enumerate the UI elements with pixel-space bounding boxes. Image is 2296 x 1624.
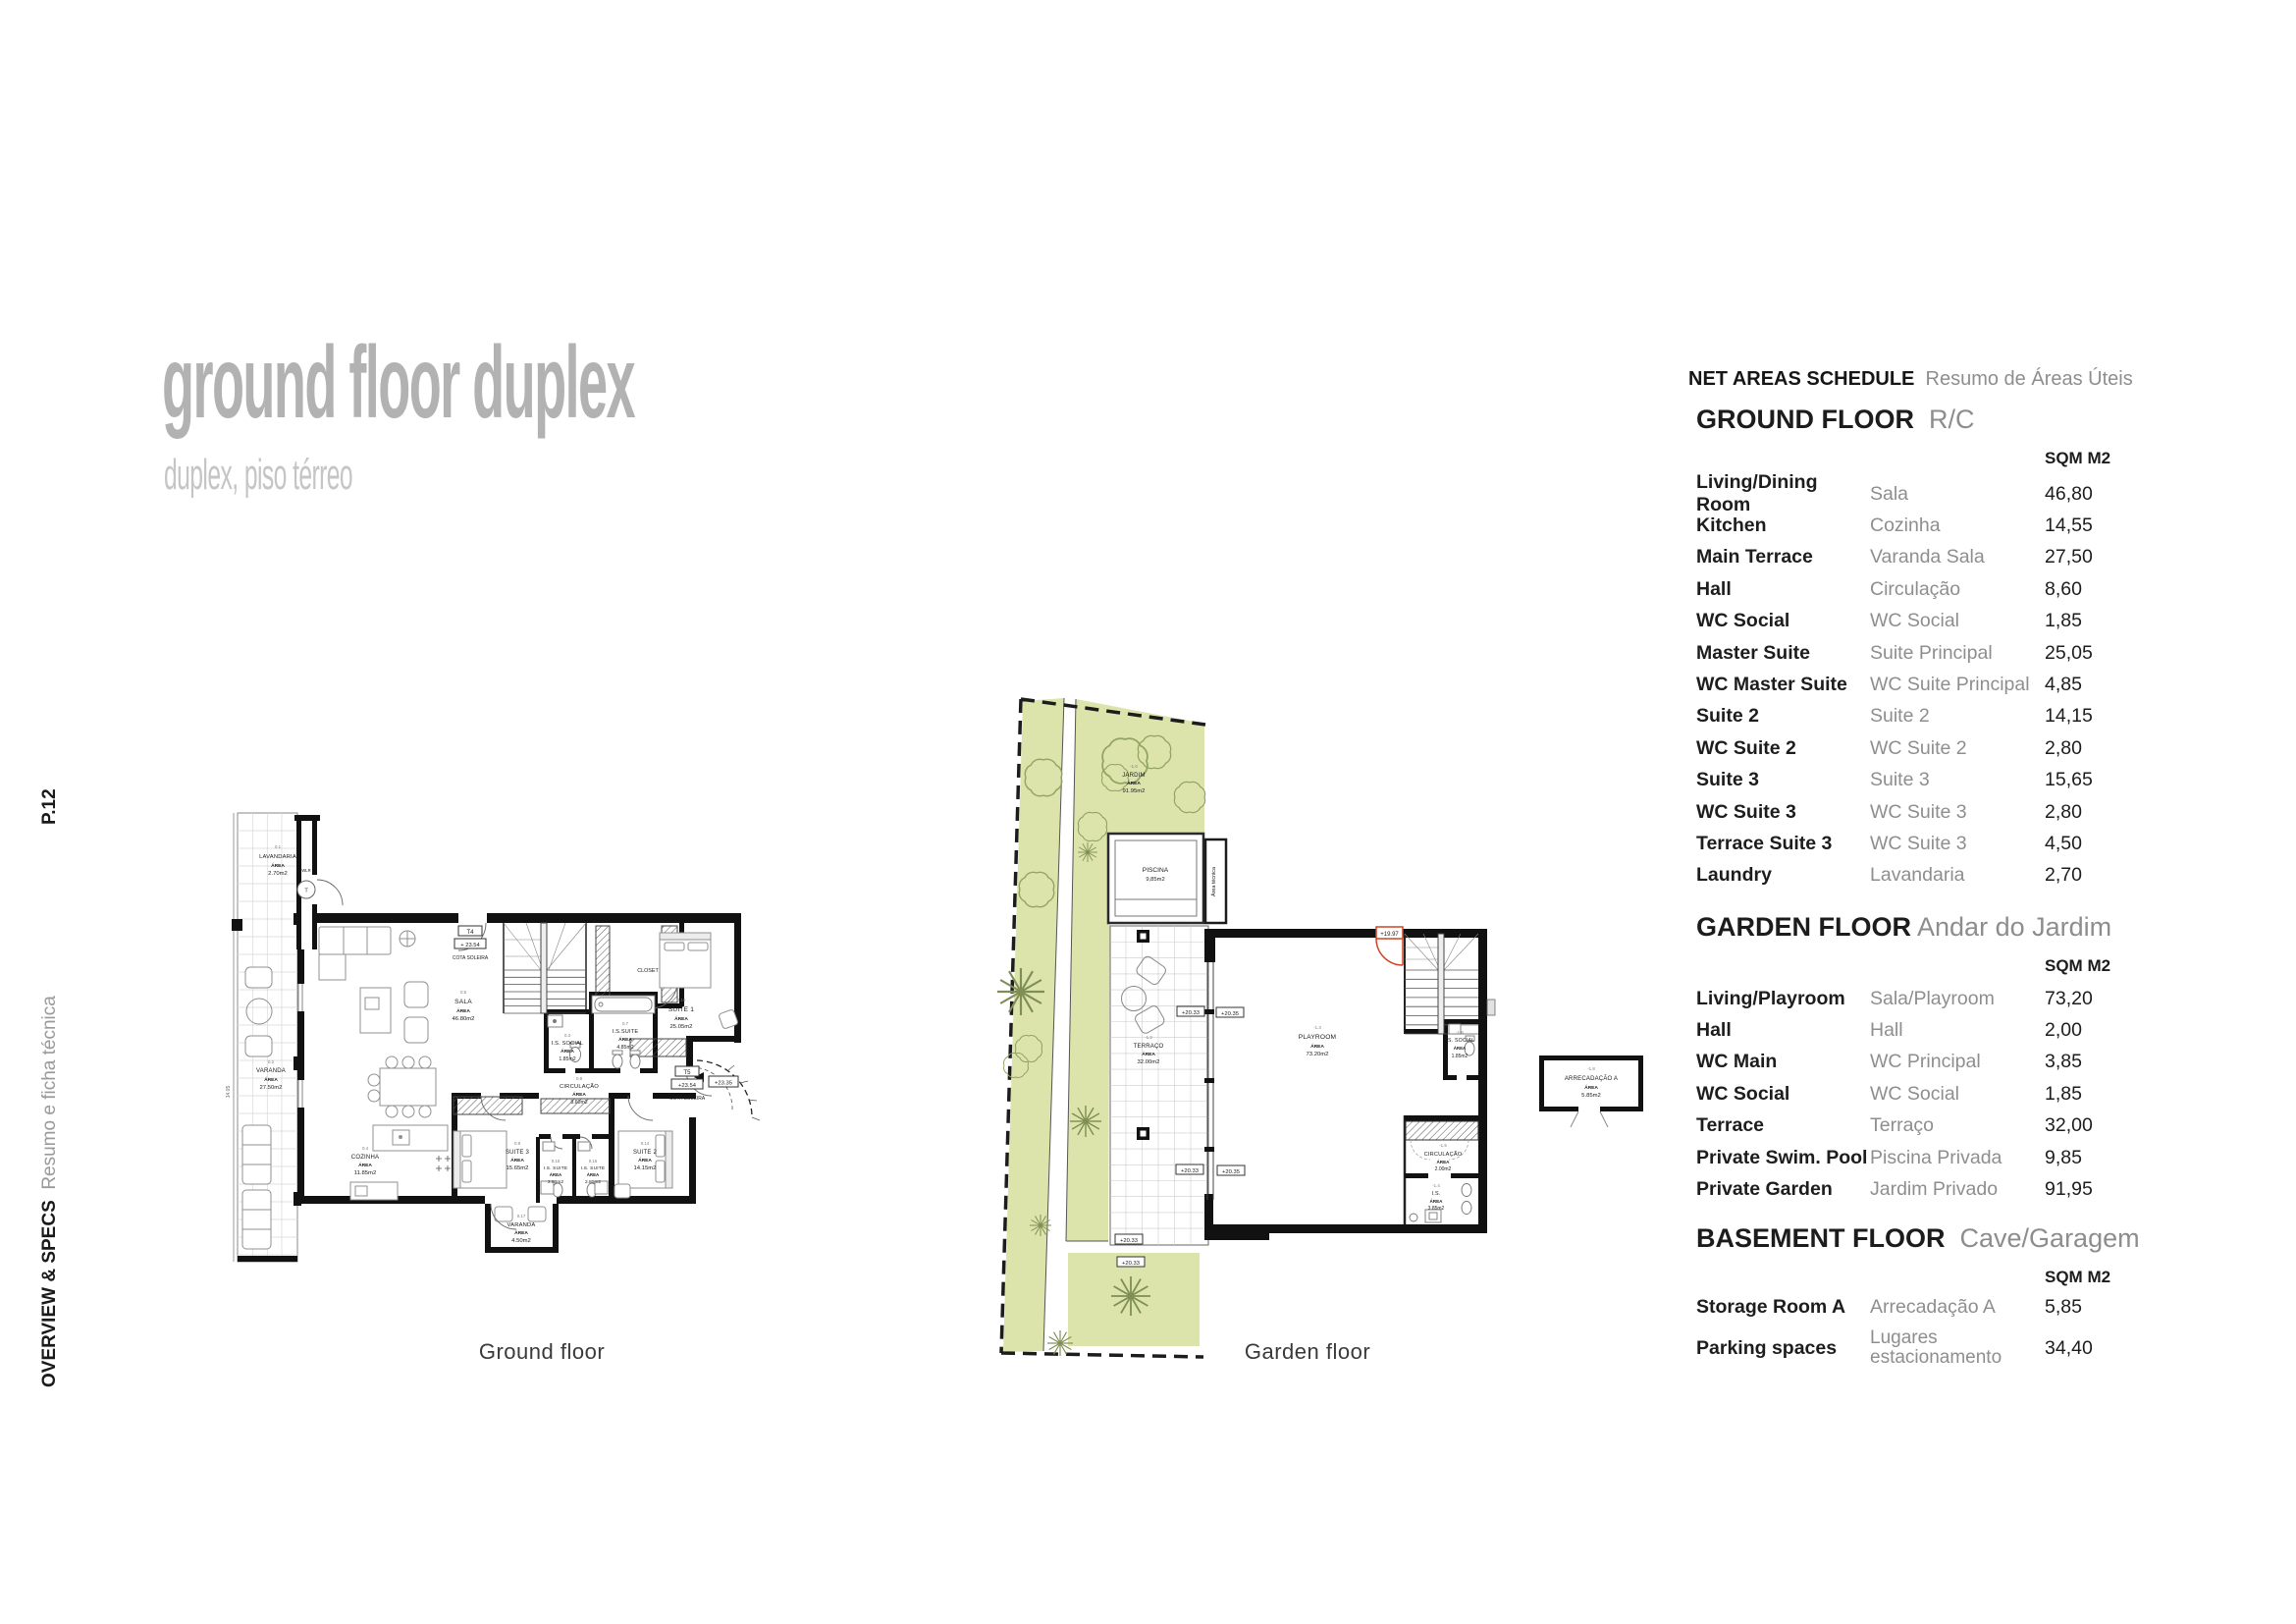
section-title-pt: R/C bbox=[1929, 405, 1975, 434]
svg-text:11.85m2: 11.85m2 bbox=[354, 1170, 377, 1176]
row-pt: WC Suite 3 bbox=[1870, 801, 2045, 824]
row-en: Living/Playroom bbox=[1696, 988, 1870, 1010]
svg-text:PLAYROOM: PLAYROOM bbox=[1299, 1034, 1336, 1041]
table-row: Private GardenJardim Privado91,95 bbox=[1696, 1173, 2140, 1205]
row-sqm: 9,85 bbox=[2045, 1147, 2133, 1169]
svg-text:0.14: 0.14 bbox=[641, 1141, 650, 1146]
swimming-pool: PISCINA 9,85m2 bbox=[1108, 834, 1203, 923]
svg-text:-1.6: -1.6 bbox=[1456, 1030, 1464, 1035]
row-pt: WC Suite Principal bbox=[1870, 674, 2045, 696]
svg-text:ÁREA: ÁREA bbox=[1142, 1051, 1155, 1057]
row-en: Living/Dining Room bbox=[1696, 471, 1870, 516]
row-sqm: 73,20 bbox=[2045, 988, 2133, 1010]
row-en: Suite 2 bbox=[1696, 705, 1870, 728]
svg-text:1.85m2: 1.85m2 bbox=[1452, 1054, 1468, 1059]
svg-text:-1.0: -1.0 bbox=[1130, 764, 1138, 769]
row-sqm: 8,60 bbox=[2045, 578, 2133, 601]
row-en: Laundry bbox=[1696, 864, 1870, 887]
section-ground-floor-title: GROUND FLOOR R/C bbox=[1696, 405, 1975, 435]
svg-text:8.60m2: 8.60m2 bbox=[570, 1100, 587, 1106]
dimension-label: 14.05 bbox=[226, 1086, 232, 1099]
svg-text:2.00m2: 2.00m2 bbox=[1435, 1166, 1452, 1172]
elevation-marker: +20.33 bbox=[1182, 1010, 1200, 1016]
svg-text:ARRECADAÇÃO A: ARRECADAÇÃO A bbox=[1565, 1075, 1618, 1082]
svg-text:COZINHA: COZINHA bbox=[351, 1155, 379, 1161]
ground-floor-caption: Ground floor bbox=[479, 1339, 605, 1365]
table-row: HallCirculação8,60 bbox=[1696, 573, 2140, 605]
row-sqm: 14,55 bbox=[2045, 514, 2133, 537]
svg-text:ÁREA: ÁREA bbox=[456, 1007, 470, 1014]
row-en: WC Social bbox=[1696, 1083, 1870, 1106]
svg-text:TERRAÇO: TERRAÇO bbox=[1134, 1044, 1164, 1050]
svg-text:ÁREA: ÁREA bbox=[358, 1162, 372, 1168]
svg-text:-1.4: -1.4 bbox=[1432, 1183, 1440, 1188]
sidebar-section-label: OVERVIEW & SPECS Resumo e ficha técnica bbox=[39, 996, 61, 1387]
garden-floor-plan: PISCINA 9,85m2 Área técnica -1.2 TERRAÇO… bbox=[987, 687, 1517, 1370]
svg-text:JARDIM: JARDIM bbox=[1122, 773, 1146, 779]
row-sqm: 3,85 bbox=[2045, 1051, 2133, 1073]
row-pt: Suite 2 bbox=[1870, 705, 2045, 728]
door-level-label: +19.97 bbox=[1380, 932, 1399, 938]
row-sqm: 2,80 bbox=[2045, 737, 2133, 760]
row-en: Terrace Suite 3 bbox=[1696, 833, 1870, 855]
svg-text:SUITE 3: SUITE 3 bbox=[506, 1150, 530, 1156]
svg-text:-1.2: -1.2 bbox=[1145, 1035, 1152, 1040]
svg-text:4.50m2: 4.50m2 bbox=[511, 1238, 531, 1244]
row-pt: Varanda Sala bbox=[1870, 546, 2045, 568]
row-en: Main Terrace bbox=[1696, 546, 1870, 568]
row-sqm: 25,05 bbox=[2045, 642, 2133, 665]
row-sqm: 15,65 bbox=[2045, 769, 2133, 791]
page-number: P.12 bbox=[39, 788, 61, 825]
svg-text:ÁREA: ÁREA bbox=[510, 1157, 524, 1164]
label-playroom: -1.3 PLAYROOM ÁREA 73.20m2 bbox=[1299, 1025, 1336, 1057]
row-pt: Sala bbox=[1870, 483, 2045, 506]
row-sqm: 46,80 bbox=[2045, 483, 2133, 506]
svg-text:0.7: 0.7 bbox=[622, 1021, 629, 1026]
row-pt: WC Social bbox=[1870, 1083, 2045, 1106]
label-arrecadacao: -1.8 ARRECADAÇÃO A ÁREA 5.85m2 bbox=[1565, 1066, 1618, 1099]
t4-cota: COTA SOLEIRA bbox=[453, 955, 489, 961]
ground-floor-rows: Living/Dining RoomSala46,80 KitchenCozin… bbox=[1696, 478, 2140, 892]
staircase bbox=[504, 923, 586, 1013]
svg-text:91.95m2: 91.95m2 bbox=[1123, 788, 1146, 794]
ground-floor-plan: WLR T bbox=[221, 803, 771, 1270]
table-row: Parking spacesLugares estacionamento34,4… bbox=[1696, 1323, 2140, 1374]
table-row: TerraceTerraço32,00 bbox=[1696, 1110, 2140, 1142]
svg-text:73.20m2: 73.20m2 bbox=[1307, 1052, 1329, 1057]
row-sqm: 27,50 bbox=[2045, 546, 2133, 568]
row-en: Master Suite bbox=[1696, 642, 1870, 665]
terrace: -1.2 TERRAÇO ÁREA 32.00m2 bbox=[1110, 926, 1208, 1245]
label-area-tecnica: Área técnica bbox=[1210, 867, 1217, 896]
row-en: WC Suite 2 bbox=[1696, 737, 1870, 760]
svg-text:ÁREA: ÁREA bbox=[1127, 780, 1141, 786]
svg-text:ÁREA: ÁREA bbox=[1436, 1159, 1450, 1164]
section-title-en: GROUND FLOOR bbox=[1696, 405, 1914, 434]
schedule-title: NET AREAS SCHEDULE bbox=[1688, 368, 1914, 390]
label-suite3: 0.9 SUITE 3 ÁREA 15.65m2 bbox=[506, 1141, 530, 1171]
sidebar-section-en: OVERVIEW & SPECS bbox=[39, 1200, 60, 1387]
svg-text:-1.8: -1.8 bbox=[1587, 1066, 1595, 1071]
svg-text:I.S. SOCIAL: I.S. SOCIAL bbox=[552, 1041, 584, 1047]
svg-text:0.16: 0.16 bbox=[589, 1159, 598, 1164]
row-sqm: 32,00 bbox=[2045, 1114, 2133, 1137]
svg-text:ÁREA: ÁREA bbox=[674, 1015, 688, 1022]
svg-text:ÁREA: ÁREA bbox=[271, 862, 285, 869]
sidebar-section-pt: Resumo e ficha técnica bbox=[39, 996, 60, 1190]
table-row: Master SuiteSuite Principal25,05 bbox=[1696, 637, 2140, 669]
svg-text:ÁREA: ÁREA bbox=[638, 1157, 652, 1164]
svg-text:3.85m2: 3.85m2 bbox=[1428, 1206, 1445, 1212]
label-is: -1.4 I.S. ÁREA 3.85m2 bbox=[1428, 1183, 1445, 1212]
svg-text:0.5: 0.5 bbox=[460, 990, 467, 995]
table-row: Suite 3Suite 315,65 bbox=[1696, 765, 2140, 796]
unit-header: SQM M2 bbox=[2045, 956, 2110, 976]
svg-text:I.S.: I.S. bbox=[1432, 1191, 1441, 1197]
elevation-marker: +20.35 bbox=[1221, 1011, 1239, 1017]
row-pt: Piscina Privada bbox=[1870, 1147, 2045, 1169]
row-pt: Terraço bbox=[1870, 1114, 2045, 1137]
t5-cota: COTA SOLEIRA bbox=[669, 1096, 706, 1102]
basement-floor-rows: Storage Room AArrecadação A5,85 Parking … bbox=[1696, 1291, 2140, 1374]
label-closet: CLOSET bbox=[637, 968, 659, 974]
row-en: Hall bbox=[1696, 1019, 1870, 1042]
table-row: Storage Room AArrecadação A5,85 bbox=[1696, 1291, 2140, 1323]
table-row: WC SocialWC Social1,85 bbox=[1696, 1078, 2140, 1110]
elevation-marker: +20.33 bbox=[1122, 1261, 1140, 1267]
svg-text:4.85m2: 4.85m2 bbox=[616, 1045, 633, 1051]
entry-door-red: +19.97 bbox=[1376, 927, 1403, 965]
svg-text:I.S. SUITE: I.S. SUITE bbox=[544, 1165, 568, 1171]
table-row: WC Master SuiteWC Suite Principal4,85 bbox=[1696, 669, 2140, 700]
svg-text:0.3: 0.3 bbox=[564, 1033, 571, 1038]
row-pt: WC Principal bbox=[1870, 1051, 2045, 1073]
wlr-label: WLR bbox=[301, 868, 310, 873]
t4-level: + 23.54 bbox=[460, 943, 480, 948]
row-en: WC Master Suite bbox=[1696, 674, 1870, 696]
table-row: Living/Dining RoomSala46,80 bbox=[1696, 478, 2140, 510]
building-walls bbox=[1204, 929, 1495, 1240]
row-pt: Cozinha bbox=[1870, 514, 2045, 537]
row-sqm: 34,40 bbox=[2045, 1337, 2133, 1360]
svg-text:ÁREA: ÁREA bbox=[1584, 1084, 1598, 1091]
svg-text:VARANDA: VARANDA bbox=[256, 1068, 286, 1074]
laundry-room: WLR T bbox=[294, 815, 320, 949]
section-basement-floor-title: BASEMENT FLOOR Cave/Garagem bbox=[1696, 1223, 2140, 1254]
svg-text:0.15: 0.15 bbox=[552, 1159, 561, 1164]
svg-text:0.9: 0.9 bbox=[514, 1141, 521, 1146]
row-sqm: 4,85 bbox=[2045, 674, 2133, 696]
unit-header: SQM M2 bbox=[2045, 449, 2110, 468]
staircase bbox=[1405, 934, 1478, 1034]
t4-code: T4 bbox=[466, 930, 474, 936]
row-pt: WC Social bbox=[1870, 610, 2045, 632]
svg-text:ÁREA: ÁREA bbox=[572, 1091, 586, 1098]
svg-text:CIRCULAÇÃO: CIRCULAÇÃO bbox=[1424, 1151, 1463, 1158]
svg-text:0.4: 0.4 bbox=[362, 1146, 369, 1151]
row-en: Hall bbox=[1696, 578, 1870, 601]
svg-text:VARANDA: VARANDA bbox=[507, 1222, 536, 1228]
svg-text:0.17: 0.17 bbox=[517, 1214, 526, 1218]
table-row: WC SocialWC Social1,85 bbox=[1696, 606, 2140, 637]
svg-text:25.05m2: 25.05m2 bbox=[670, 1024, 693, 1030]
table-row: Private Swim. PoolPiscina Privada9,85 bbox=[1696, 1142, 2140, 1173]
row-en: WC Main bbox=[1696, 1051, 1870, 1073]
t5-level: +23.54 bbox=[678, 1083, 697, 1089]
table-row: Main TerraceVaranda Sala27,50 bbox=[1696, 542, 2140, 573]
garden-floor-rows: Living/PlayroomSala/Playroom73,20 HallHa… bbox=[1696, 983, 2140, 1206]
svg-text:ÁREA: ÁREA bbox=[514, 1229, 528, 1236]
garden-floor-caption: Garden floor bbox=[1245, 1339, 1370, 1365]
row-sqm: 2,80 bbox=[2045, 801, 2133, 824]
svg-text:2.80m2: 2.80m2 bbox=[548, 1179, 563, 1185]
svg-text:SALA: SALA bbox=[454, 999, 472, 1005]
svg-text:ÁREA: ÁREA bbox=[618, 1036, 632, 1043]
schedule-header: NET AREAS SCHEDULE Resumo de Áreas Úteis bbox=[1688, 368, 2133, 391]
page-subtitle: duplex, piso térreo bbox=[164, 454, 352, 497]
svg-text:0.1: 0.1 bbox=[275, 844, 282, 849]
unit-header: SQM M2 bbox=[2045, 1268, 2110, 1287]
row-en: Kitchen bbox=[1696, 514, 1870, 537]
svg-text:CIRCULAÇÃO: CIRCULAÇÃO bbox=[560, 1083, 599, 1090]
row-pt: Sala/Playroom bbox=[1870, 988, 2045, 1010]
elevation-marker: +20.33 bbox=[1181, 1168, 1199, 1174]
table-row: KitchenCozinha14,55 bbox=[1696, 510, 2140, 541]
table-row: HallHall2,00 bbox=[1696, 1014, 2140, 1046]
svg-text:ÁREA: ÁREA bbox=[1310, 1043, 1324, 1050]
svg-text:14.15m2: 14.15m2 bbox=[634, 1165, 657, 1171]
table-row: LaundryLavandaria2,70 bbox=[1696, 860, 2140, 892]
svg-text:0.2: 0.2 bbox=[268, 1059, 275, 1064]
row-en: Terrace bbox=[1696, 1114, 1870, 1137]
svg-text:ÁREA: ÁREA bbox=[550, 1172, 562, 1177]
svg-text:32.00m2: 32.00m2 bbox=[1138, 1059, 1160, 1065]
row-sqm: 14,15 bbox=[2045, 705, 2133, 728]
svg-text:2.80m2: 2.80m2 bbox=[585, 1179, 601, 1185]
svg-text:2.70m2: 2.70m2 bbox=[268, 871, 288, 877]
row-pt: Suite Principal bbox=[1870, 642, 2045, 665]
balcony-walls bbox=[485, 1204, 559, 1253]
elevation-marker: +20.35 bbox=[1222, 1169, 1240, 1175]
row-sqm: 5,85 bbox=[2045, 1296, 2133, 1319]
page: ground floor duplex duplex, piso térreo … bbox=[0, 0, 2296, 1624]
svg-text:ÁREA: ÁREA bbox=[587, 1172, 600, 1177]
svg-text:15.65m2: 15.65m2 bbox=[507, 1165, 529, 1171]
svg-text:I.S.SUITE: I.S.SUITE bbox=[613, 1029, 639, 1035]
row-sqm: 1,85 bbox=[2045, 1083, 2133, 1106]
table-row: Terrace Suite 3WC Suite 34,50 bbox=[1696, 828, 2140, 859]
section-title-pt: Andar do Jardim bbox=[1917, 912, 2111, 942]
svg-text:0.10: 0.10 bbox=[677, 998, 686, 1002]
row-en: WC Social bbox=[1696, 610, 1870, 632]
row-en: Parking spaces bbox=[1696, 1337, 1870, 1360]
elevation-marker: +20.33 bbox=[1120, 1238, 1138, 1244]
svg-text:ÁREA: ÁREA bbox=[1454, 1046, 1467, 1051]
t5-level2: +23.35 bbox=[715, 1081, 732, 1087]
row-pt: Hall bbox=[1870, 1019, 2045, 1042]
page-title: ground floor duplex bbox=[162, 332, 634, 434]
label-is-suite3a: 0.15 I.S. SUITE ÁREA 2.80m2 bbox=[544, 1159, 568, 1185]
row-sqm: 91,95 bbox=[2045, 1178, 2133, 1201]
svg-text:27.50m2: 27.50m2 bbox=[260, 1085, 283, 1091]
row-pt: Lugares estacionamento bbox=[1870, 1328, 2045, 1369]
row-en: WC Suite 3 bbox=[1696, 801, 1870, 824]
row-sqm: 1,85 bbox=[2045, 610, 2133, 632]
table-row: WC Suite 2WC Suite 22,80 bbox=[1696, 732, 2140, 764]
row-pt: Jardim Privado bbox=[1870, 1178, 2045, 1201]
row-sqm: 2,70 bbox=[2045, 864, 2133, 887]
schedule-title-pt: Resumo de Áreas Úteis bbox=[1926, 368, 2133, 390]
svg-text:I.S. SOCIAL: I.S. SOCIAL bbox=[1445, 1038, 1474, 1044]
svg-text:SUITE 1: SUITE 1 bbox=[668, 1006, 694, 1013]
row-pt: WC Suite 3 bbox=[1870, 833, 2045, 855]
svg-text:I.S. SUITE: I.S. SUITE bbox=[581, 1165, 606, 1171]
row-pt: WC Suite 2 bbox=[1870, 737, 2045, 760]
row-en: Private Garden bbox=[1696, 1178, 1870, 1201]
svg-text:ÁREA: ÁREA bbox=[1429, 1198, 1443, 1204]
section-garden-floor-title: GARDEN FLOOR Andar do Jardim bbox=[1696, 912, 2111, 943]
svg-text:-1.5: -1.5 bbox=[1439, 1143, 1447, 1148]
svg-text:SUITE 2: SUITE 2 bbox=[633, 1150, 658, 1156]
row-pt: Lavandaria bbox=[1870, 864, 2045, 887]
svg-text:5.85m2: 5.85m2 bbox=[1581, 1093, 1601, 1099]
storage-room-plan: -1.8 ARRECADAÇÃO A ÁREA 5.85m2 bbox=[1527, 1047, 1655, 1135]
svg-text:0.8: 0.8 bbox=[576, 1076, 583, 1081]
svg-text:-1.3: -1.3 bbox=[1313, 1025, 1321, 1030]
svg-text:ÁREA: ÁREA bbox=[264, 1076, 278, 1083]
row-pt: Arrecadação A bbox=[1870, 1296, 2045, 1319]
svg-text:46.80m2: 46.80m2 bbox=[453, 1016, 475, 1022]
row-en: Private Swim. Pool bbox=[1696, 1147, 1870, 1169]
table-row: Living/PlayroomSala/Playroom73,20 bbox=[1696, 983, 2140, 1014]
row-en: Suite 3 bbox=[1696, 769, 1870, 791]
row-pt: Suite 3 bbox=[1870, 769, 2045, 791]
section-title-pt: Cave/Garagem bbox=[1960, 1223, 2140, 1253]
row-sqm: 2,00 bbox=[2045, 1019, 2133, 1042]
section-title-en: GARDEN FLOOR bbox=[1696, 912, 1911, 942]
table-row: WC MainWC Principal3,85 bbox=[1696, 1047, 2140, 1078]
section-title-en: BASEMENT FLOOR bbox=[1696, 1223, 1946, 1253]
t5-code: T5 bbox=[683, 1070, 691, 1076]
label-piscina-area: 9,85m2 bbox=[1146, 877, 1164, 883]
table-row: WC Suite 3WC Suite 32,80 bbox=[1696, 796, 2140, 828]
svg-text:ÁREA: ÁREA bbox=[561, 1048, 574, 1055]
technical-area: Área técnica bbox=[1205, 839, 1226, 923]
table-row: Suite 2Suite 214,15 bbox=[1696, 701, 2140, 732]
row-sqm: 4,50 bbox=[2045, 833, 2133, 855]
row-en: Storage Room A bbox=[1696, 1296, 1870, 1319]
svg-text:LAVANDARIA: LAVANDARIA bbox=[259, 854, 296, 860]
svg-text:1.85m2: 1.85m2 bbox=[559, 1056, 575, 1062]
row-pt: Circulação bbox=[1870, 578, 2045, 601]
label-piscina: PISCINA bbox=[1143, 867, 1169, 874]
label-sala: 0.5 SALA ÁREA 46.80m2 bbox=[453, 990, 475, 1022]
